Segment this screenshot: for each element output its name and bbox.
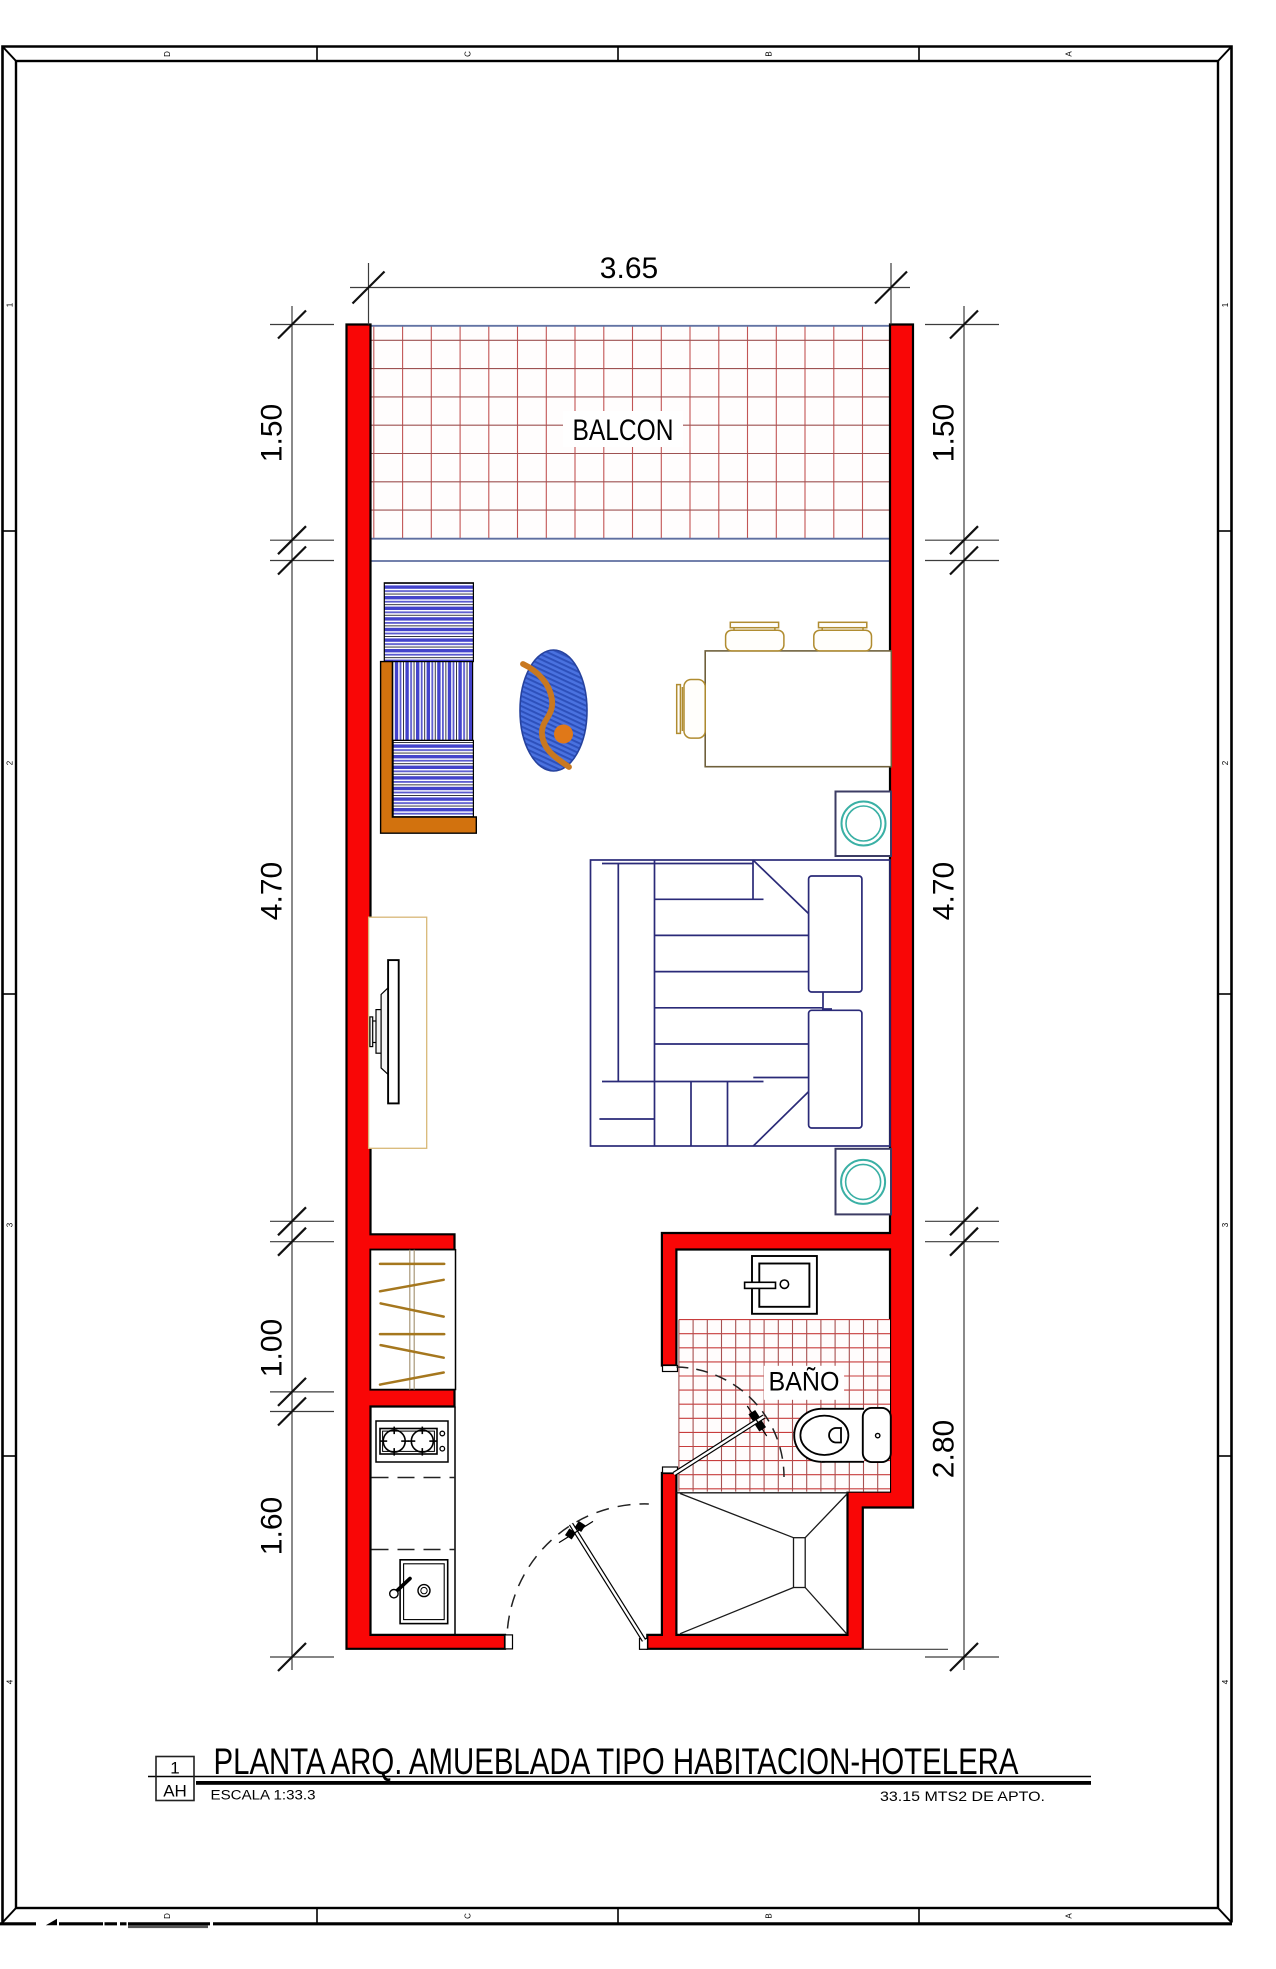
svg-text:3.65: 3.65 xyxy=(600,252,658,285)
svg-text:1.50: 1.50 xyxy=(256,404,289,462)
svg-text:1.60: 1.60 xyxy=(256,1497,289,1555)
svg-text:BAÑO: BAÑO xyxy=(769,1366,840,1397)
svg-text:B: B xyxy=(765,1913,774,1918)
svg-text:AH: AH xyxy=(163,1782,187,1801)
svg-text:33.15 MTS2 DE APTO.: 33.15 MTS2 DE APTO. xyxy=(880,1788,1045,1804)
svg-text:ESCALA 1:33.3: ESCALA 1:33.3 xyxy=(211,1788,316,1803)
svg-text:2.80: 2.80 xyxy=(928,1420,961,1478)
svg-text:1: 1 xyxy=(1221,302,1230,307)
svg-text:A: A xyxy=(1065,1913,1074,1919)
svg-text:BALCON: BALCON xyxy=(573,414,674,447)
svg-text:4.70: 4.70 xyxy=(256,862,289,920)
svg-text:2: 2 xyxy=(6,760,15,765)
svg-text:PLANTA ARQ. AMUEBLADA TIPO HAB: PLANTA ARQ. AMUEBLADA TIPO HABITACION-HO… xyxy=(214,1740,1019,1782)
svg-text:3: 3 xyxy=(1221,1222,1230,1227)
svg-text:2: 2 xyxy=(1221,760,1230,765)
svg-text:B: B xyxy=(765,51,774,56)
svg-text:D: D xyxy=(163,51,172,57)
svg-text:C: C xyxy=(464,51,473,57)
svg-text:4: 4 xyxy=(1221,1679,1230,1684)
svg-text:1.50: 1.50 xyxy=(928,404,961,462)
svg-text:1.00: 1.00 xyxy=(256,1319,289,1377)
svg-text:C: C xyxy=(464,1913,473,1919)
svg-text:3: 3 xyxy=(6,1222,15,1227)
svg-text:A: A xyxy=(1065,51,1074,57)
svg-text:4.70: 4.70 xyxy=(928,862,961,920)
svg-text:1: 1 xyxy=(170,1759,179,1778)
svg-text:1: 1 xyxy=(6,302,15,307)
svg-text:D: D xyxy=(163,1913,172,1919)
svg-text:4: 4 xyxy=(6,1679,15,1684)
